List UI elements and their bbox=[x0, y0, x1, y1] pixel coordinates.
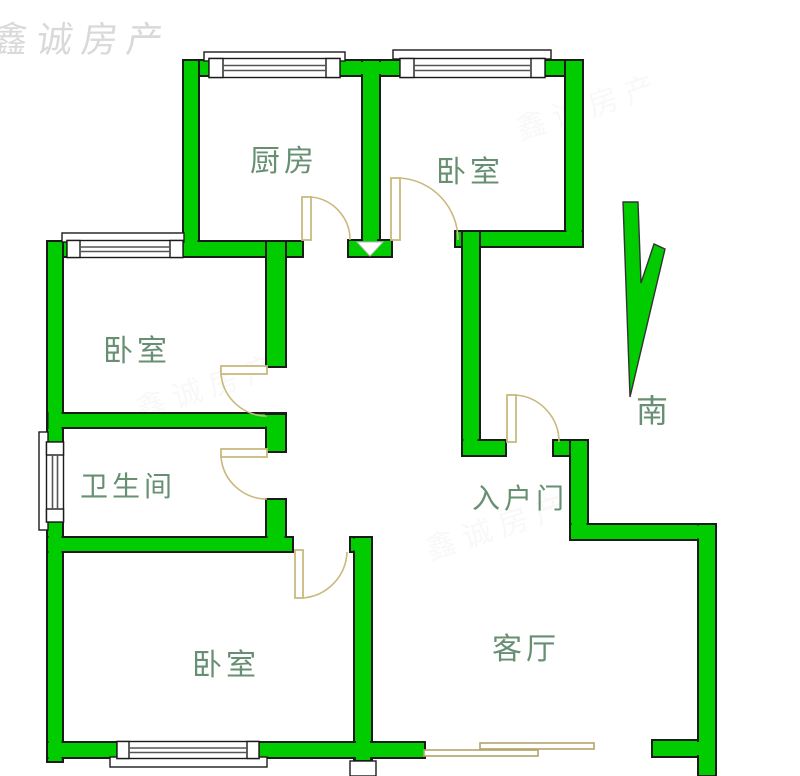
bathroom-window bbox=[39, 432, 64, 530]
wall-center-upper bbox=[266, 241, 286, 367]
wall-bedroom-bl-top bbox=[47, 537, 293, 552]
wall-outer-right bbox=[698, 524, 716, 776]
wall-kitchen-bedroom-divider bbox=[362, 60, 380, 240]
bedroom-top-right-window bbox=[393, 50, 551, 78]
floor-plan-svg: 鑫诚房产 鑫诚房产 鑫诚房产 bbox=[0, 0, 800, 776]
wall-bedroom-bl-right bbox=[354, 537, 372, 760]
wall-right-stub bbox=[652, 740, 698, 757]
compass-label: 南 bbox=[636, 393, 668, 429]
balcony-window-partial bbox=[350, 761, 376, 776]
wall-bathroom-top bbox=[49, 413, 287, 428]
kitchen-door bbox=[302, 197, 350, 240]
room-label-bedroom-middle-left: 卧室 bbox=[103, 335, 171, 368]
living-room-sliding-door bbox=[424, 743, 594, 756]
bedroom-middle-left-window bbox=[62, 233, 184, 258]
wall-center-mid bbox=[266, 414, 286, 452]
room-label-kitchen: 厨房 bbox=[250, 145, 318, 178]
bedroom-bottom-left-door bbox=[295, 550, 347, 598]
entry-door bbox=[507, 395, 559, 442]
room-label-living-room: 客厅 bbox=[492, 633, 560, 666]
south-arrow-icon bbox=[623, 202, 665, 397]
floor-plan-page: 鑫诚房产 鑫诚房产 鑫诚房产 bbox=[0, 0, 800, 776]
wall-living-step bbox=[570, 524, 716, 540]
watermark-text: 鑫诚房产 bbox=[512, 68, 667, 146]
wall-kitchen-left bbox=[183, 60, 199, 257]
room-label-entry-door: 入户门 bbox=[472, 483, 568, 514]
room-label-bedroom-bottom-left: 卧室 bbox=[192, 649, 260, 682]
bedroom-bottom-left-window bbox=[110, 742, 267, 768]
room-label-bathroom: 卫生间 bbox=[80, 471, 176, 502]
bathroom-door bbox=[221, 449, 267, 499]
room-label-bedroom-top-right: 卧室 bbox=[436, 156, 504, 189]
walls bbox=[47, 60, 716, 776]
kitchen-window bbox=[204, 52, 345, 78]
corner-watermark: 鑫诚房产 bbox=[0, 19, 175, 60]
wall-entry-vertical bbox=[462, 231, 480, 443]
wall-bedroom-tr-right bbox=[565, 60, 583, 247]
compass: 南 bbox=[623, 202, 668, 429]
